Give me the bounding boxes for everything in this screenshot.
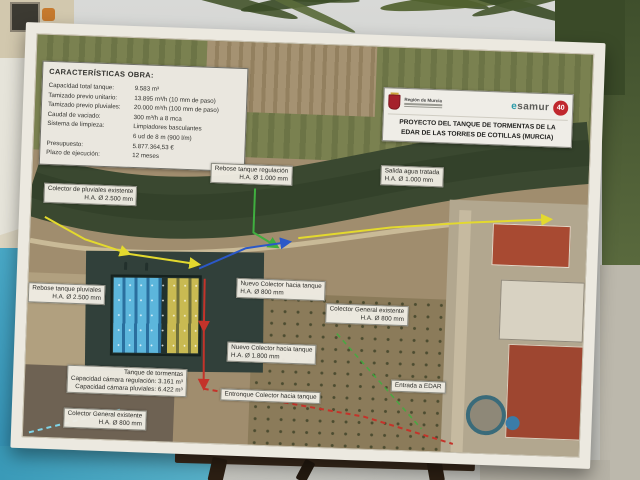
pavement — [600, 265, 640, 480]
murcia-org-sublines — [404, 103, 442, 108]
label-tanque-tormentas: Tanque de tormentas Capacidad cámara reg… — [66, 365, 187, 397]
logo-row: Región de Murcia esamur 40 — [388, 91, 569, 121]
specs-box: CARACTERÍSTICAS OBRA: Capacidad total ta… — [39, 61, 249, 172]
title-box: Región de Murcia esamur 40 PROYECTO DEL … — [382, 87, 574, 148]
murcia-shield-icon — [388, 94, 401, 109]
orange-lamp — [42, 8, 55, 21]
label-nuevo-colector-800: Nuevo Colector hacia tanque H.A. Ø 800 m… — [236, 278, 326, 301]
label-colector-general-sur: Colector General existente H.A. Ø 800 mm — [63, 408, 146, 431]
esamur-40-badge: 40 — [553, 100, 569, 116]
aerial-map: CARACTERÍSTICAS OBRA: Capacidad total ta… — [22, 33, 594, 457]
label-rebose-regulacion: Rebose tanque regulación H.A. Ø 1.000 mm — [210, 163, 292, 186]
project-title: PROYECTO DEL TANQUE DE TORMENTAS DE LA E… — [387, 117, 568, 143]
red-roof-building — [491, 223, 570, 268]
person-icon — [145, 263, 148, 271]
tank-dots — [113, 278, 199, 354]
person-icon — [124, 262, 127, 270]
label-colector-pluviales: Colector de pluviales existente H.A. Ø 2… — [43, 183, 137, 206]
spec-label: Plazo de ejecución: — [46, 148, 132, 161]
label-entrada-edar: Entrada a EDAR — [391, 380, 446, 394]
esamur-logo: esamur — [511, 100, 549, 112]
label-nuevo-colector-1800: Nuevo Colector hacia tanque H.A. Ø 1.800… — [227, 342, 317, 365]
project-sign-board: CARACTERÍSTICAS OBRA: Capacidad total ta… — [10, 22, 605, 469]
storm-tank — [110, 274, 202, 356]
photo-of-project-sign: CARACTERÍSTICAS OBRA: Capacidad total ta… — [0, 0, 640, 480]
label-colector-general-este: Colector General existente H.A. Ø 800 mm — [325, 303, 408, 326]
specs-heading: CARACTERÍSTICAS OBRA: — [49, 67, 241, 83]
murcia-org-block: Región de Murcia — [404, 97, 442, 109]
label-salida-agua: Salida agua tratada H.A. Ø 1.000 mm — [380, 165, 443, 187]
label-rebose-pluviales: Rebose tanque pluviales H.A. Ø 2.500 mm — [28, 282, 106, 305]
label-entronque: Entronque Colector hacia tanque — [220, 388, 320, 404]
white-building — [499, 280, 585, 343]
